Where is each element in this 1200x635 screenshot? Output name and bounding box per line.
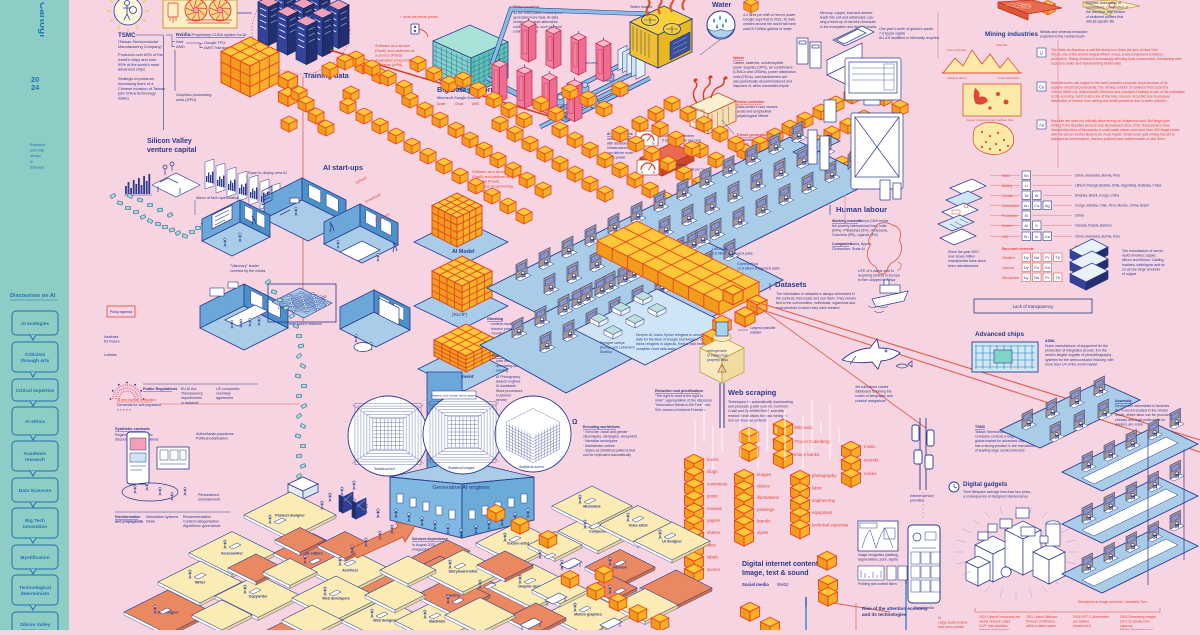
svg-text:through arts: through arts bbox=[21, 358, 50, 364]
svg-text:captions:: captions: bbox=[1120, 624, 1133, 628]
svg-text:Diesel generators: Diesel generators bbox=[737, 133, 769, 137]
svg-text:Au: Au bbox=[1024, 203, 1029, 208]
svg-text:Largest possible: Largest possible bbox=[750, 326, 776, 330]
svg-text:venture capital: venture capital bbox=[147, 147, 196, 154]
svg-text:Texture artist: Texture artist bbox=[507, 542, 530, 546]
svg-text:documented tens of thousands o: documented tens of thousands of small-sc… bbox=[1051, 128, 1180, 132]
svg-text:world's largest supplier of ph: world's largest supplier of photolithogr… bbox=[1045, 353, 1111, 357]
svg-text:is then shipped to Africa: is then shipped to Africa bbox=[858, 278, 895, 282]
svg-text:Noise pollution: Noise pollution bbox=[737, 100, 765, 104]
svg-text:Lobbies: Lobbies bbox=[104, 353, 117, 357]
svg-text:Processor: Processor bbox=[1002, 214, 1018, 218]
svg-text:Infringement: Infringement bbox=[707, 349, 726, 353]
svg-text:AI: AI bbox=[938, 616, 941, 620]
svg-text:cheaply and legal protections: cheaply and legal protections for bbox=[1115, 418, 1166, 422]
svg-text:AI ecologies: AI ecologies bbox=[21, 321, 50, 327]
svg-text:Fashion: Fashion bbox=[613, 566, 627, 570]
svg-text:in: in bbox=[30, 160, 33, 164]
svg-text:(CRACs and CRAHs), power distr: (CRACs and CRAHs), power distribution bbox=[733, 70, 796, 74]
svg-text:4ht submarine cables: 4ht submarine cables bbox=[855, 385, 889, 389]
svg-text:and processing web content. Co: and processing web content. Common bbox=[728, 405, 788, 409]
svg-text:has a strong position in the m: has a strong position in the manufacture bbox=[975, 444, 1037, 448]
svg-text:"Information Wants to Be Free": "Information Wants to Be Free" mid- bbox=[655, 403, 712, 407]
svg-text:News: News bbox=[146, 520, 155, 524]
svg-text:One year's worth of global e-w: One year's worth of global e-waste: bbox=[879, 27, 934, 31]
svg-text:LAION-5B: LAION-5B bbox=[712, 247, 729, 251]
svg-text:Product designer: Product designer bbox=[275, 514, 305, 518]
svg-text:Gd: Gd bbox=[1045, 265, 1050, 270]
svg-text:Sn: Sn bbox=[1024, 234, 1029, 239]
svg-text:production of integrated circu: production of integrated circuits. It is… bbox=[1045, 349, 1107, 353]
svg-text:Algorithmic governance: Algorithmic governance bbox=[183, 524, 221, 528]
svg-text:Large scale models: Large scale models bbox=[938, 620, 968, 624]
svg-text:colonial navigations: colonial navigations bbox=[855, 399, 886, 403]
svg-text:voluntary: voluntary bbox=[216, 392, 231, 396]
svg-text:tied to the communities, indiv: tied to the communities, individuals, or… bbox=[776, 301, 855, 305]
svg-text:Information systems: Information systems bbox=[146, 515, 178, 519]
svg-text:Silicon Valley: Silicon Valley bbox=[20, 622, 51, 628]
svg-text:Extraction and prioritisation: Extraction and prioritisation bbox=[655, 389, 703, 393]
svg-text:Crawl and OpenWebText2, scient: Crawl and OpenWebText2, scientific bbox=[728, 409, 784, 413]
svg-text:Discourses on AI: Discourses on AI bbox=[10, 293, 56, 299]
svg-text:US companies: US companies bbox=[216, 387, 240, 391]
svg-text:technical expertise: technical expertise bbox=[812, 523, 849, 528]
svg-text:books: books bbox=[707, 457, 720, 462]
svg-text:Proprietary CUDA system for AI: Proprietary CUDA system for AI bbox=[192, 32, 246, 37]
svg-text:Recommendation: Recommendation bbox=[183, 515, 211, 519]
svg-text:more than 1/4 of the world mar: more than 1/4 of the world market bbox=[1045, 362, 1097, 366]
svg-text:distribution of income from mi: distribution of income from mining and h… bbox=[1051, 99, 1167, 103]
svg-text:transformer): transformer) bbox=[1073, 624, 1091, 628]
svg-text:China's MMG Ltd, Switzerland's: China's MMG Ltd, Switzerland's Glencore … bbox=[1051, 90, 1185, 94]
svg-text:access to water and impoverish: access to water and impoverishing biodiv… bbox=[1051, 62, 1121, 66]
svg-text:(64%), Philippines (6%), Venez: (64%), Philippines (6%), Venezuela, bbox=[832, 229, 888, 233]
svg-text:Statistical text: Statistical text bbox=[374, 467, 395, 471]
svg-text:Rwanda, Brazil, Congo, China: Rwanda, Brazil, Congo, China bbox=[1075, 194, 1119, 198]
svg-text:Web developers: Web developers bbox=[322, 597, 350, 601]
svg-text:widespread deforestation, merc: widespread deforestation, mercury pollut… bbox=[1051, 137, 1166, 141]
svg-text:Datasets: Datasets bbox=[775, 280, 807, 289]
svg-text:Pr: Pr bbox=[1045, 255, 1050, 260]
svg-text:Social media: Social media bbox=[742, 582, 769, 587]
svg-text:Devices are assembled in facto: Devices are assembled in factories bbox=[1115, 404, 1170, 408]
svg-text:2021 OpenAI introduces the: 2021 OpenAI introduces the bbox=[979, 615, 1020, 619]
svg-text:stereotypes, ideologies, viewp: stereotypes, ideologies, viewpoints bbox=[583, 435, 637, 439]
svg-text:Statistical images: Statistical images bbox=[448, 466, 475, 470]
svg-text:units (GPU): units (GPU) bbox=[176, 97, 197, 102]
svg-text:AI Photography: AI Photography bbox=[496, 375, 520, 379]
svg-text:pre-trained: pre-trained bbox=[1073, 619, 1089, 623]
svg-text:Mining industries: Mining industries bbox=[985, 31, 1038, 38]
svg-text:Atacama desert: Atacama desert bbox=[947, 76, 967, 80]
svg-text:voices: voices bbox=[864, 471, 877, 476]
svg-text:The Salar de Atacama, a salt f: The Salar de Atacama, a salt flat nearly… bbox=[1051, 48, 1158, 52]
svg-text:Conductors: Conductors bbox=[1002, 204, 1019, 208]
svg-text:Voice artist: Voice artist bbox=[628, 524, 648, 528]
svg-text:"The right to read is the righ: "The right to read is the right to bbox=[655, 394, 703, 398]
svg-text:Tb: Tb bbox=[1055, 255, 1060, 260]
svg-text:Lack of transparency: Lack of transparency bbox=[1013, 304, 1055, 309]
svg-text:Disinformation: Disinformation bbox=[115, 515, 140, 519]
svg-text:of copper: of copper bbox=[1122, 272, 1137, 276]
svg-text:Congo, Zambia, Chile, Peru, Me: Congo, Zambia, Chile, Peru, Mexico, Chin… bbox=[1075, 204, 1149, 208]
svg-text:acute and longitudinal: acute and longitudinal bbox=[737, 110, 771, 114]
svg-text:agreement: agreement bbox=[216, 396, 233, 400]
svg-text:CLIP, that classifies: CLIP, that classifies bbox=[979, 624, 1008, 628]
svg-text:Data center's hum causes: Data center's hum causes bbox=[737, 105, 778, 109]
svg-text:that run in private: that run in private bbox=[938, 625, 964, 629]
svg-text:Personalized: Personalized bbox=[198, 493, 219, 497]
svg-text:Internet service: Internet service bbox=[910, 494, 934, 498]
svg-text:Metals and minerals extraction: Metals and minerals extraction bbox=[1040, 30, 1088, 34]
svg-text:dataset: dataset bbox=[750, 331, 762, 335]
svg-text:property laws: property laws bbox=[707, 358, 728, 362]
svg-text:Web designer: Web designer bbox=[373, 619, 397, 623]
svg-text:Copywriter: Copywriter bbox=[249, 595, 268, 599]
svg-text:of sediment plumes that: of sediment plumes that bbox=[1086, 15, 1123, 19]
svg-text:The manufacture of server: The manufacture of server bbox=[1122, 249, 1164, 253]
svg-text:impacts: destruction of: impacts: destruction of bbox=[1086, 1, 1121, 5]
svg-text:Demands for self-regulation: Demands for self-regulation bbox=[117, 403, 161, 407]
svg-text:Architect: Architect bbox=[342, 569, 358, 573]
svg-text:reviews: reviews bbox=[707, 506, 723, 511]
svg-text:in datasets: in datasets bbox=[181, 401, 199, 405]
svg-text:(SaaS) and platforms as: (SaaS) and platforms as bbox=[375, 49, 415, 53]
svg-text:Deep-based networks: Deep-based networks bbox=[287, 322, 322, 326]
svg-text:Nvidia:: Nvidia: bbox=[176, 32, 192, 38]
svg-text:requirements: requirements bbox=[181, 396, 202, 400]
svg-text:· Styles as statistical patte: · Styles as statistical patterns that bbox=[583, 448, 635, 452]
svg-text:UI designer: UI designer bbox=[662, 540, 682, 544]
svg-text:labels: labels bbox=[707, 555, 719, 560]
svg-text:trains refugees in Uganda, Ken: trains refugees in Uganda, Kenya, and In… bbox=[636, 342, 708, 346]
svg-text:5.8 billion image-text pairs: 5.8 billion image-text pairs bbox=[712, 252, 753, 256]
svg-text:non commercial contexts: non commercial contexts bbox=[728, 418, 767, 422]
svg-text:2019 GPT-2 (Generative: 2019 GPT-2 (Generative bbox=[1073, 615, 1109, 619]
svg-text:Ghosting: Ghosting bbox=[487, 317, 503, 321]
svg-text:Weld: Weld bbox=[1002, 174, 1010, 178]
svg-text:workers are scant: workers are scant bbox=[1115, 422, 1143, 426]
svg-text:racks involves copper,: racks involves copper, bbox=[1122, 254, 1156, 258]
svg-text:Manufacturing Company): Manufacturing Company) bbox=[118, 44, 162, 49]
svg-text:TSMC: TSMC bbox=[118, 32, 136, 39]
svg-text:Research: Research bbox=[30, 143, 45, 147]
svg-text:a consequence of designed obso: a consequence of designed obsolescence bbox=[963, 495, 1028, 499]
svg-text:12.8 billion image-text pairs: 12.8 billion image-text pairs bbox=[737, 267, 780, 271]
svg-text:neural network called: neural network called bbox=[979, 619, 1010, 623]
svg-text:Copper 'mining corridor' south: Copper 'mining corridor' southern Peru bbox=[966, 118, 1014, 122]
svg-text:the sea floor, and erosion: the sea floor, and erosion bbox=[1086, 10, 1125, 14]
svg-text:Search engines: Search engines bbox=[496, 380, 521, 384]
svg-text:Software as a service: Software as a service bbox=[472, 170, 507, 174]
svg-text:The information in datasets is: The information in datasets is always em… bbox=[776, 292, 855, 296]
svg-text:blogs: blogs bbox=[707, 469, 718, 474]
svg-text:Cu: Cu bbox=[1039, 85, 1045, 90]
svg-text:like Foxconn located in the Gl: like Foxconn located in the Global bbox=[1115, 409, 1168, 413]
svg-text:(RLHF): (RLHF) bbox=[452, 312, 468, 317]
svg-text:ecosystems, compaction of: ecosystems, compaction of bbox=[1086, 6, 1128, 10]
svg-text:Vibration: Vibration bbox=[1002, 256, 1015, 260]
svg-text:Big Tech: Big Tech bbox=[25, 518, 45, 524]
svg-text:AI and human extinction:: AI and human extinction: bbox=[117, 398, 157, 402]
svg-text:Musicians: Musicians bbox=[583, 505, 600, 509]
svg-text:sounds: sounds bbox=[864, 458, 879, 463]
svg-text:TSMC: TSMC bbox=[975, 425, 986, 429]
svg-text:AI Model: AI Model bbox=[452, 249, 475, 255]
svg-text:Mean of tech speculation: Mean of tech speculation bbox=[196, 195, 239, 200]
svg-text:design: design bbox=[30, 154, 41, 158]
svg-text:K: K bbox=[1035, 223, 1038, 228]
svg-text:Sn: Sn bbox=[1024, 173, 1029, 178]
svg-text:* * * * *: * * * * * bbox=[117, 408, 131, 413]
svg-text:recycling centres in Europe: recycling centres in Europe bbox=[858, 274, 900, 278]
svg-text:Ag: Ag bbox=[1045, 203, 1050, 208]
svg-text:Authoritarian populisms: Authoritarian populisms bbox=[196, 432, 234, 436]
svg-text:Policy agenda: Policy agenda bbox=[110, 310, 133, 314]
svg-text:Public Regulations: Public Regulations bbox=[143, 387, 177, 391]
svg-text:Battery: Battery bbox=[1002, 184, 1013, 188]
svg-text:equipment: equipment bbox=[812, 510, 833, 515]
svg-text:Camera: Camera bbox=[1002, 266, 1014, 270]
svg-text:Deepen AI, trains Syrian refug: Deepen AI, trains Syrian refugees to ann… bbox=[636, 333, 707, 337]
svg-text:been manufactured: been manufactured bbox=[948, 264, 978, 268]
svg-text:labor: labor bbox=[812, 485, 822, 490]
svg-text:with the actual number likely: with the actual number likely to be much… bbox=[1051, 133, 1175, 137]
svg-text:on all use large amounts: on all use large amounts bbox=[1122, 267, 1160, 271]
svg-text:Canada, Russia, Belarus: Canada, Russia, Belarus bbox=[1075, 224, 1112, 228]
svg-text:over seven billion: over seven billion bbox=[948, 255, 975, 259]
svg-text:Content categorisation: Content categorisation bbox=[183, 520, 219, 524]
svg-text:styles: styles bbox=[757, 530, 769, 535]
svg-text:papers: papers bbox=[707, 518, 721, 523]
svg-text:Data Sciences: Data Sciences bbox=[19, 488, 52, 494]
svg-text:Cu: Cu bbox=[1034, 203, 1039, 208]
svg-text:EU AI Act:: EU AI Act: bbox=[181, 387, 197, 391]
svg-text:superior electrical conductivi: superior electrical conductivity. The 'm… bbox=[1051, 86, 1169, 90]
svg-text:paintings: paintings bbox=[757, 507, 775, 512]
svg-text:(SaaS) and platform as: (SaaS) and platform as bbox=[472, 175, 510, 179]
svg-text:providers: providers bbox=[910, 499, 925, 503]
svg-text:Manufacturers use copper in th: Manufacturers use copper in the most pow… bbox=[1051, 81, 1168, 85]
svg-text:Human labour: Human labour bbox=[836, 205, 887, 214]
svg-text:· labeling: · labeling bbox=[494, 369, 508, 373]
svg-text:leach into soil and waterways,: leach into soil and waterways, cau- bbox=[820, 16, 875, 20]
svg-text:Azure: Azure bbox=[437, 102, 446, 106]
svg-text:in the ecosystem and its food: in the ecosystem and its food chains bbox=[820, 25, 877, 29]
svg-text:Since the year 2007,: Since the year 2007, bbox=[948, 250, 980, 254]
svg-text:a service (PaaS): a service (PaaS) bbox=[375, 54, 402, 58]
svg-text:for Future: for Future bbox=[104, 340, 120, 344]
svg-text:Web2: Web2 bbox=[777, 582, 789, 587]
svg-text:Rare-earth elements: Rare-earth elements bbox=[1002, 247, 1034, 251]
svg-text:posts: posts bbox=[707, 494, 718, 499]
svg-text:Cerro dominant: Cerro dominant bbox=[947, 48, 966, 52]
svg-text:with additional: with additional bbox=[607, 142, 629, 146]
svg-text:the contexts that create and u: the contexts that create and use them. T… bbox=[776, 297, 856, 301]
svg-text:China, Indonesia, Burma, Peru: China, Indonesia, Burma, Peru bbox=[1075, 174, 1120, 178]
svg-text:AI assistants: AI assistants bbox=[496, 384, 516, 388]
svg-text:Waste: Waste bbox=[733, 56, 744, 60]
svg-text:Si: Si bbox=[1024, 213, 1028, 218]
svg-text:Shatila): Shatila) bbox=[600, 350, 612, 354]
svg-text:sing a build-up of harmful che: sing a build-up of harmful chemicals bbox=[820, 20, 876, 24]
svg-text:of intellectual: of intellectual bbox=[707, 354, 728, 358]
svg-text:images: images bbox=[757, 472, 772, 477]
svg-text:AMD: AMD bbox=[176, 44, 185, 49]
svg-text:Ga: Ga bbox=[1045, 234, 1051, 239]
svg-text:ALL4.5 landfilled or informall: ALL4.5 landfilled or informally recycled bbox=[879, 36, 939, 40]
svg-text:90's version of Internet Freed: 90's version of Internet Freedom bbox=[655, 408, 705, 412]
svg-text:Dy: Dy bbox=[1024, 275, 1029, 280]
svg-text:Massive and private latent spa: Massive and private latent spaces bbox=[431, 394, 477, 398]
svg-text:Image recognition (labeling,: Image recognition (labeling, bbox=[858, 553, 899, 557]
svg-text:also periodically decommission: also periodically decommissioned and bbox=[733, 79, 792, 83]
svg-text:Li: Li bbox=[1025, 183, 1028, 188]
svg-text:AI start-ups: AI start-ups bbox=[323, 163, 363, 172]
svg-text:of the economy, but it is also: of the economy, but it is also one of th… bbox=[1051, 95, 1170, 99]
svg-text:can deliver much: can deliver much bbox=[607, 151, 634, 155]
svg-text:2016 Generating images: 2016 Generating images bbox=[1120, 615, 1156, 619]
svg-text:Digital internet content: Digital internet content bbox=[742, 561, 819, 568]
svg-text:LED: LED bbox=[1002, 235, 1009, 239]
svg-text:Web scraping: Web scraping bbox=[728, 388, 777, 397]
svg-text:and propaganda: and propaganda bbox=[115, 520, 144, 524]
svg-text:AI ethics: AI ethics bbox=[25, 419, 45, 425]
svg-text:Image, text & sound: Image, text & sound bbox=[742, 570, 809, 577]
svg-text:battle): battle) bbox=[118, 96, 130, 101]
svg-text:China: China bbox=[1075, 214, 1084, 218]
svg-text:disrupt aquatic life: disrupt aquatic life bbox=[1086, 19, 1114, 23]
svg-text:· Mainstream culture: · Mainstream culture bbox=[583, 444, 615, 448]
svg-text:centres around the world will: centres around the world will have bbox=[743, 22, 796, 26]
svg-text:Servers: Servers bbox=[585, 61, 598, 65]
svg-text:Word processors: Word processors bbox=[496, 389, 523, 393]
svg-text:entertainment: entertainment bbox=[198, 498, 220, 502]
svg-text:disposed of, when warranties e: disposed of, when warranties expire bbox=[733, 84, 789, 88]
svg-text:Screen: Screen bbox=[1002, 224, 1013, 228]
svg-text:Working markets:: Working markets: bbox=[832, 219, 862, 223]
svg-text:Ω: Ω bbox=[572, 419, 577, 426]
svg-text:of leading-edge semiconductors: of leading-edge semiconductors bbox=[975, 448, 1025, 452]
svg-text:engineering: engineering bbox=[812, 498, 836, 503]
svg-text:(32 x 32 pixels) from: (32 x 32 pixels) from bbox=[1120, 619, 1150, 623]
svg-text:Andes Mountains: Andes Mountains bbox=[998, 76, 1020, 80]
svg-text:4-9 litres per kWh of server p: 4-9 litres per kWh of server power. bbox=[743, 13, 796, 17]
svg-text:Assembly: Assembly bbox=[1115, 399, 1132, 403]
svg-text:Circuits: Circuits bbox=[1002, 194, 1013, 198]
svg-text:Tb: Tb bbox=[1055, 275, 1060, 280]
svg-text:Image banks: Image banks bbox=[794, 452, 820, 457]
svg-text:AWS: AWS bbox=[472, 102, 479, 106]
svg-text:Microphone: Microphone bbox=[1002, 276, 1019, 280]
svg-text:Process of diffusion: Process of diffusion bbox=[1026, 619, 1055, 623]
svg-text:scores: scores bbox=[707, 567, 721, 572]
svg-text:mine": appropriation of the di: mine": appropriation of the discourse bbox=[655, 399, 712, 403]
svg-text:research institutions for data: research institutions for data mining in bbox=[728, 414, 787, 418]
svg-text:Generative AI engines: Generative AI engines bbox=[432, 485, 489, 491]
svg-text:Synthetic contents: Synthetic contents bbox=[115, 426, 150, 431]
svg-text:generates more heat, AI data: generates more heat, AI data bbox=[513, 16, 558, 20]
svg-text:Their lifespans average less t: Their lifespans average less than two ye… bbox=[963, 490, 1031, 494]
svg-text:Profiling and content filters: Profiling and content filters bbox=[858, 582, 897, 586]
svg-text:ASML: ASML bbox=[1045, 339, 1056, 343]
svg-text:Brazilian law does not officia: Brazilian law does not officially allow … bbox=[1051, 119, 1170, 123]
svg-text:LIFE of e-waste sent to: LIFE of e-waste sent to bbox=[858, 269, 894, 273]
svg-text:China, Indonesia, Burma, Peru: China, Indonesia, Burma, Peru bbox=[1075, 235, 1120, 239]
svg-text:↑ local electrical prices: ↑ local electrical prices bbox=[400, 15, 438, 19]
svg-text:environments in which they wer: environments in which they were created bbox=[776, 306, 839, 310]
svg-text:(Kenya and Lebanon's: (Kenya and Lebanon's bbox=[600, 346, 635, 350]
svg-text:smartphones have since: smartphones have since bbox=[948, 259, 986, 263]
svg-text:Wikipedia: Wikipedia bbox=[794, 425, 814, 430]
svg-text:Transparency: Transparency bbox=[181, 392, 203, 396]
svg-text:the poverty international line: the poverty international line), India bbox=[832, 224, 887, 228]
svg-text:covered by the media: covered by the media bbox=[230, 269, 266, 273]
svg-text:Technological: Technological bbox=[19, 585, 51, 591]
svg-text:production. Rising demand is i: production. Rising demand is increasingl… bbox=[1051, 57, 1182, 61]
svg-text:Institutes: Institutes bbox=[104, 335, 119, 339]
svg-text:Political polarisation: Political polarisation bbox=[196, 437, 228, 441]
svg-text:Al: Al bbox=[1024, 223, 1028, 228]
svg-text:7.3 kg per capita: 7.3 kg per capita bbox=[879, 32, 905, 36]
svg-text:Academic: Academic bbox=[24, 451, 47, 457]
svg-text:Statistical sound: Statistical sound bbox=[519, 465, 544, 469]
svg-text:and map: and map bbox=[30, 149, 44, 153]
svg-text:Digital gadgets: Digital gadgets bbox=[963, 481, 1008, 488]
svg-text:segmentation, pose, depth): segmentation, pose, depth) bbox=[858, 557, 898, 561]
svg-text:physiological effects: physiological effects bbox=[737, 114, 769, 118]
svg-text:Techniques for automatically d: Techniques for automatically downloading bbox=[728, 400, 793, 404]
svg-text:used 5.2 billion gallons of wa: used 5.2 billion gallons of water bbox=[743, 27, 793, 31]
svg-text:· Narrative archetypes: · Narrative archetypes bbox=[583, 439, 618, 443]
svg-text:Eu: Eu bbox=[1034, 265, 1039, 270]
svg-text:distributed following the: distributed following the bbox=[855, 390, 892, 394]
svg-text:Clickworker, Scale AI: Clickworker, Scale AI bbox=[832, 247, 865, 251]
svg-text:can be replicated automaticall: can be replicated automatically bbox=[583, 453, 631, 457]
svg-text:Critical expertise: Critical expertise bbox=[16, 388, 55, 394]
svg-text:brands: brands bbox=[757, 518, 771, 523]
svg-text:Race to deploy new AI: Race to deploy new AI bbox=[248, 170, 287, 175]
svg-text:Storyboard artist: Storyboard artist bbox=[449, 570, 479, 574]
svg-text:Cables, batteries, uninterrupt: Cables, batteries, uninterruptible bbox=[733, 61, 783, 65]
svg-text:Nd: Nd bbox=[1034, 275, 1039, 280]
svg-text:Descriptors to image and texts: Descriptors to image and texts + Aesthet… bbox=[1078, 600, 1147, 604]
svg-text:Water towers: Water towers bbox=[630, 5, 652, 9]
svg-text:Google says that in 2021, its: Google says that in 2021, its data bbox=[743, 18, 795, 22]
svg-text:Mystification: Mystification bbox=[20, 555, 49, 561]
svg-text:research: research bbox=[25, 457, 45, 463]
svg-text:videos: videos bbox=[757, 484, 770, 489]
svg-text:W: W bbox=[1035, 193, 1039, 198]
svg-text:24: 24 bbox=[31, 83, 40, 92]
svg-text:Criticism: Criticism bbox=[25, 352, 46, 358]
svg-text:innovation: innovation bbox=[23, 524, 47, 530]
svg-text:and its technologies: and its technologies bbox=[862, 612, 907, 617]
svg-text:photography: photography bbox=[812, 473, 837, 478]
svg-text:"Visionary" leader: "Visionary" leader bbox=[230, 264, 260, 268]
svg-text:Dy: Dy bbox=[1024, 255, 1029, 260]
svg-text:Pr: Pr bbox=[1045, 275, 1050, 280]
svg-text:service: service bbox=[496, 398, 507, 402]
svg-text:Services dependence: Services dependence bbox=[412, 537, 448, 541]
svg-text:Mercury, copper, lead and arse: Mercury, copper, lead and arsenic bbox=[820, 11, 873, 15]
svg-text:Writer: Writer bbox=[195, 581, 206, 585]
svg-text:2021 Latent Diffusion:: 2021 Latent Diffusion: bbox=[1026, 615, 1058, 619]
svg-text:complete chart data tasks: complete chart data tasks bbox=[636, 347, 676, 351]
svg-text:Nd: Nd bbox=[1034, 255, 1039, 260]
svg-text:mining in the Brazilian Amazon: mining in the Brazilian Amazon has skyro… bbox=[1051, 124, 1170, 128]
svg-text:Water: Water bbox=[712, 2, 731, 9]
